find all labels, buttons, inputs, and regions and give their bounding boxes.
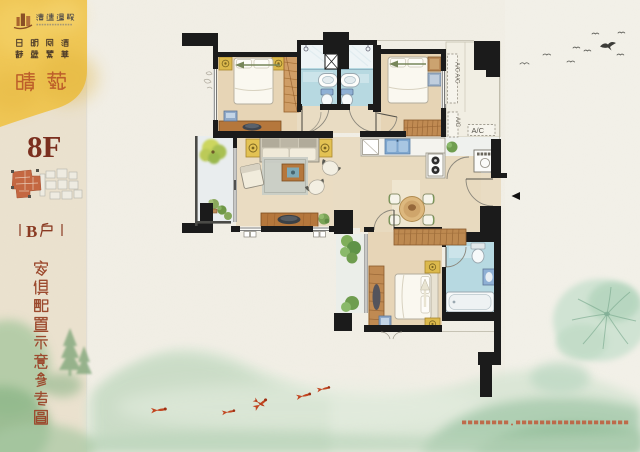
- svg-text:A/C A/C: A/C A/C: [454, 62, 460, 84]
- svg-text:8F: 8F: [27, 129, 61, 164]
- svg-text:A/C: A/C: [472, 126, 485, 135]
- svg-text:A/C: A/C: [454, 117, 460, 128]
- svg-text:B: B: [26, 222, 37, 241]
